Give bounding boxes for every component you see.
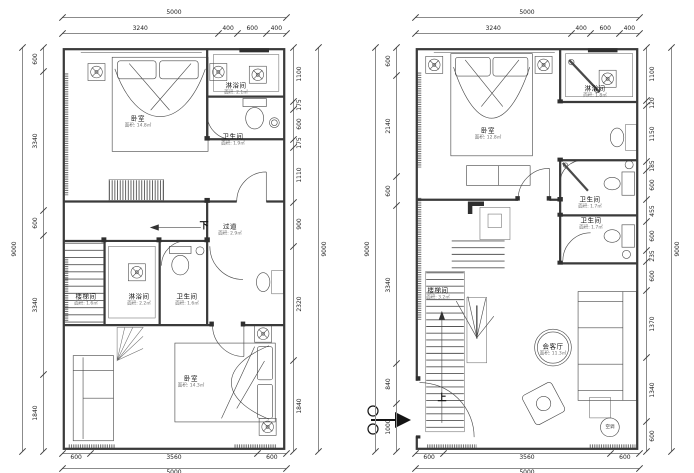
dim-label: 600 (266, 455, 277, 461)
dim-top-segments: 3240400600400 (62, 21, 286, 35)
room-label-bedroom-top: 卧室 面积: 14.8㎡ (125, 115, 151, 128)
floor-plan-sheet: 5000 3240400600400 9000 6003340600334018… (0, 0, 694, 473)
door-arc (213, 325, 244, 356)
dim-label: 400 (575, 26, 586, 32)
door-arc (237, 172, 267, 202)
room-label-bedroom: 卧室 面积: 12.8㎡ (475, 127, 501, 140)
dim-label: 1150 (650, 126, 656, 141)
dim-label: 840 (386, 378, 392, 389)
pillow-icon (455, 57, 490, 76)
sink-icon (625, 161, 633, 169)
window-hatch (419, 72, 635, 446)
pillow-icon (493, 57, 528, 76)
dim-label: 1100 (297, 66, 303, 81)
ground-floor-drawing (415, 47, 639, 451)
walls (64, 49, 284, 449)
walls (417, 49, 637, 449)
ac-label: 空调 (606, 424, 615, 430)
dim-top-segments: 3240400600400 (415, 21, 639, 35)
dim-label: 9000 (365, 241, 371, 256)
stair-direction-up: 上 (437, 395, 446, 404)
room-label-shower-top: 淋浴间 面积: 2.1㎡ (224, 82, 248, 95)
dim-label: 2140 (386, 119, 392, 134)
dim-label: 2320 (297, 296, 303, 311)
dim-label: 600 (70, 455, 81, 461)
door-arc (518, 168, 549, 199)
room-label-bath-2: 卫生间 面积: 1.7㎡ (579, 217, 603, 230)
dim-label: 3560 (519, 455, 534, 461)
room-label-bath-mid: 卫生间 面积: 1.6㎡ (175, 293, 199, 306)
dim-label: 3340 (33, 297, 39, 312)
dim-label: 600 (599, 26, 610, 32)
dim-label: 1840 (33, 405, 39, 420)
dim-bottom-segments: 6003560600 (62, 452, 286, 466)
dim-right-overall: 9000 (670, 47, 682, 451)
toilet-icon (622, 225, 635, 247)
dim-label: 9000 (675, 241, 681, 256)
dim-label: 3560 (166, 455, 181, 461)
upper-floor-plan: 5000 3240400600400 9000 6003340600334018… (0, 0, 353, 473)
door-arc (563, 233, 591, 261)
sink-icon (196, 247, 204, 255)
dim-label: 5000 (519, 10, 534, 16)
upper-floor-drawing (62, 47, 286, 451)
sink-icon (256, 273, 269, 292)
dim-label: 120 (650, 97, 656, 108)
room-label-living: 会客厅 面积: 11.3㎡ (540, 343, 566, 356)
dim-label: 3340 (386, 277, 392, 292)
sofa-icon (578, 292, 636, 401)
entrance-gap (415, 381, 419, 437)
bed-icon (112, 57, 208, 151)
toilet-icon (170, 246, 192, 253)
ground-floor-plan: 5000 3240400600400 9000 6002140600334084… (353, 0, 694, 473)
dim-label: 600 (246, 26, 257, 32)
room-label-stair-room: 楼梯间 面积: 3.2㎡ (426, 287, 450, 300)
dim-left-segments: 600214060033408401000 (386, 47, 398, 451)
stair-direction-down: 下 (199, 223, 208, 232)
room-label-bedroom-bottom: 卧室 面积: 14.3㎡ (178, 375, 204, 388)
dim-label: 600 (650, 179, 656, 190)
sink-icon (269, 118, 279, 128)
dim-label: 600 (33, 54, 39, 65)
thin-linework (426, 52, 637, 431)
dim-label: 600 (650, 230, 656, 241)
pillow-icon (118, 61, 157, 79)
dim-bottom-overall: 5000 (62, 467, 286, 473)
dim-label: 1100 (650, 66, 656, 81)
dim-label: 3240 (133, 26, 148, 32)
dim-bottom-overall: 5000 (415, 467, 639, 473)
door-arc (210, 246, 243, 279)
room-label-shower: 淋浴间 面积: 1.8㎡ (583, 85, 607, 98)
dim-label: 600 (619, 455, 630, 461)
armchair-icon (521, 381, 566, 426)
dim-left-overall: 9000 (12, 47, 24, 451)
dim-label: 175 (297, 138, 303, 149)
dim-left-overall: 9000 (365, 47, 377, 451)
dim-label: 900 (297, 219, 303, 230)
dim-label: 1340 (650, 382, 656, 397)
dim-label: 3240 (486, 26, 501, 32)
dim-label: 400 (222, 26, 233, 32)
dim-top-overall: 5000 (415, 5, 639, 19)
dim-label: 1370 (650, 316, 656, 331)
dim-label: 9000 (12, 241, 18, 256)
dim-label: 400 (271, 26, 282, 32)
room-label-shower-mid: 淋浴间 面积: 2.2㎡ (127, 293, 151, 306)
dim-right-overall: 9000 (317, 47, 329, 451)
toilet-icon (243, 98, 266, 106)
room-label-stair-room: 楼梯间 面积: 1.6㎡ (74, 293, 98, 306)
pillow-icon (257, 347, 272, 380)
dim-top-overall: 5000 (62, 5, 286, 19)
dim-label: 9000 (322, 241, 328, 256)
dim-label: 600 (423, 455, 434, 461)
dim-label: 1110 (297, 167, 303, 182)
toilet-icon (622, 172, 635, 195)
dim-label: 3340 (33, 134, 39, 149)
dim-left-segments: 600334060033401840 (33, 47, 45, 451)
room-label-corridor: 过道 面积: 2.9㎡ (218, 223, 242, 236)
dim-label: 1840 (297, 398, 303, 413)
window-hatch (66, 73, 276, 446)
dim-label: 235 (650, 251, 656, 262)
dim-label: 185 (650, 160, 656, 171)
dim-label: 5000 (166, 10, 181, 16)
pillow-icon (257, 384, 272, 418)
dim-right-segments: 1100175600175111090023201840 (292, 47, 304, 451)
sink-icon (622, 250, 630, 258)
dim-label: 600 (650, 431, 656, 442)
pillow-icon (160, 61, 199, 79)
dim-label: 400 (624, 26, 635, 32)
dim-label: 600 (33, 217, 39, 228)
dim-label: 175 (297, 100, 303, 111)
sink-icon (610, 128, 623, 147)
dim-bottom-segments: 6003560600 (415, 452, 639, 466)
dim-label: 455 (650, 205, 656, 216)
dim-label: 1000 (386, 420, 392, 435)
dim-label: 600 (297, 119, 303, 130)
dim-label: 600 (650, 271, 656, 282)
furniture-fixtures (419, 54, 636, 437)
room-label-bath-top: 卫生间 面积: 1.9㎡ (221, 133, 245, 146)
door-arc (419, 383, 474, 438)
dim-label: 600 (386, 55, 392, 66)
dim-label: 600 (386, 185, 392, 196)
room-label-bath-1: 卫生间 面积: 1.7㎡ (578, 196, 602, 209)
dim-right-segments: 1100120115018560045560023560013701340600 (645, 47, 657, 451)
